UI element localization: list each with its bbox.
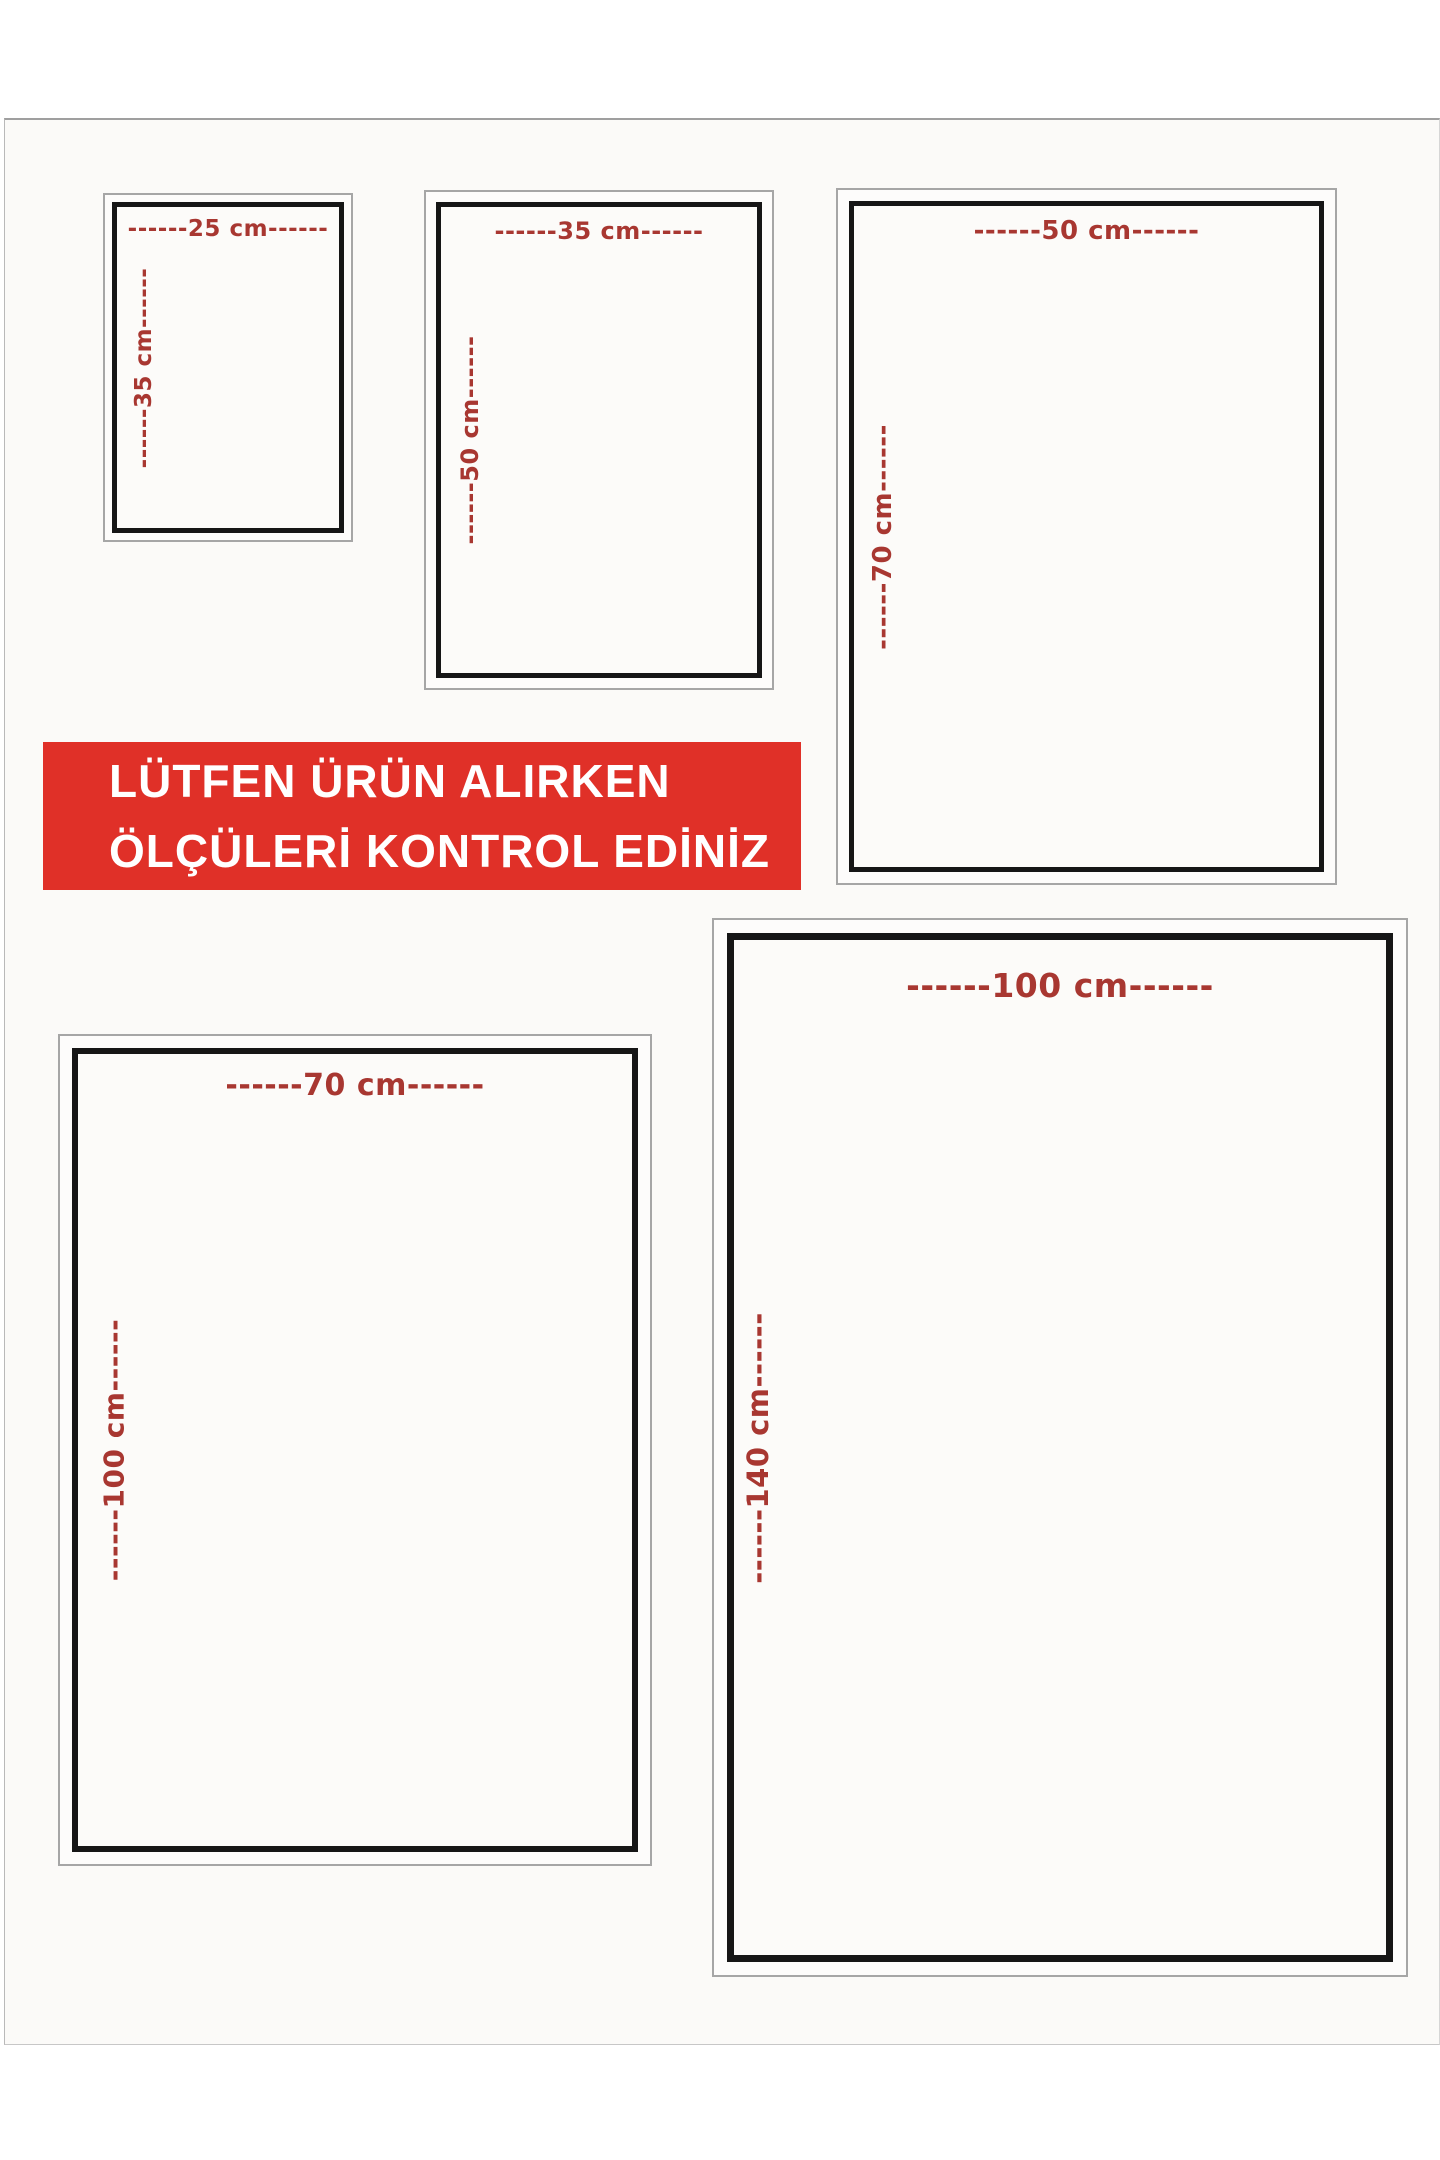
height-label-70cm: ------70 cm------ [868, 424, 898, 650]
width-label-35cm: ------35 cm------ [441, 217, 757, 245]
height-label-140cm: ------140 cm------ [741, 1312, 775, 1583]
width-label-25cm: ------25 cm------ [117, 216, 339, 242]
size-chart-image: ------25 cm------ ------35 cm------ ----… [0, 0, 1440, 2160]
size-box-70x100: ------70 cm------ ------100 cm------ [58, 1034, 652, 1866]
height-label-35cm: ------35 cm------ [131, 267, 157, 468]
height-label-50cm: ------50 cm------ [456, 335, 484, 544]
size-box-50x70-frame: ------50 cm------ ------70 cm------ [849, 201, 1324, 872]
warning-banner: LÜTFEN ÜRÜN ALIRKEN ÖLÇÜLERİ KONTROL EDİ… [43, 742, 801, 890]
warning-banner-line2: ÖLÇÜLERİ KONTROL EDİNİZ [109, 816, 801, 886]
size-box-70x100-frame: ------70 cm------ ------100 cm------ [72, 1048, 638, 1852]
width-label-100cm: ------100 cm------ [734, 966, 1386, 1005]
size-box-50x70: ------50 cm------ ------70 cm------ [836, 188, 1337, 885]
width-label-50cm: ------50 cm------ [854, 216, 1319, 246]
size-box-100x140-frame: ------100 cm------ ------140 cm------ [727, 933, 1393, 1962]
warning-banner-line1: LÜTFEN ÜRÜN ALIRKEN [109, 746, 801, 816]
size-box-25x35: ------25 cm------ ------35 cm------ [103, 193, 353, 542]
height-label-100cm: ------100 cm------ [98, 1319, 131, 1581]
size-box-25x35-frame: ------25 cm------ ------35 cm------ [112, 202, 344, 533]
size-box-35x50-frame: ------35 cm------ ------50 cm------ [436, 202, 762, 678]
size-box-35x50: ------35 cm------ ------50 cm------ [424, 190, 774, 690]
width-label-70cm: ------70 cm------ [78, 1068, 632, 1103]
size-box-100x140: ------100 cm------ ------140 cm------ [712, 918, 1408, 1977]
